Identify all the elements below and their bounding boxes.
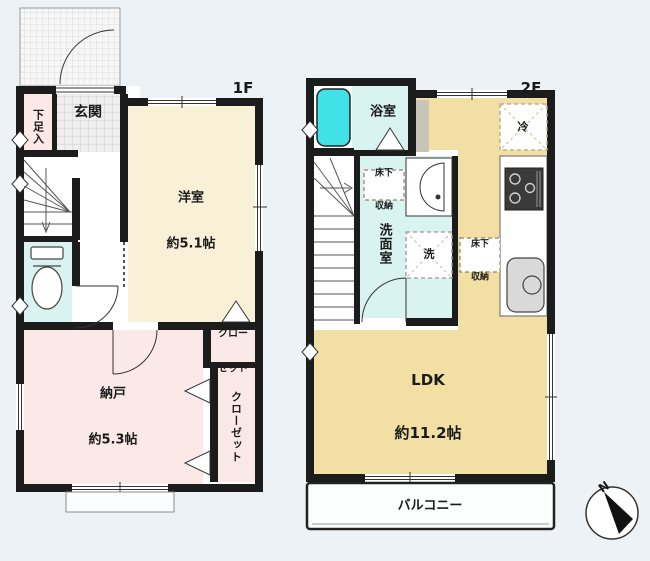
ldk-label: LDK 約11.2帖: [394, 337, 461, 461]
room-name: 納戸: [88, 386, 137, 401]
balcony-label: バルコニー: [398, 498, 463, 513]
room-name: 洋室: [166, 190, 215, 205]
underfloor-storage-washroom-label: 床下 収納: [375, 146, 393, 225]
floor2-label: 2F: [521, 80, 542, 98]
storage-room-door-gap: [113, 322, 158, 330]
washbasin-icon: [406, 158, 452, 216]
bathroom-label: 浴室: [370, 104, 396, 119]
entrance-porch: [20, 8, 120, 86]
window-bottom: [66, 482, 174, 512]
entrance-hall-floor: [57, 94, 122, 152]
floor2-plan: [302, 78, 557, 529]
window-storage-left: [16, 384, 24, 430]
compass-icon: [586, 487, 638, 539]
room-name: LDK: [394, 372, 461, 390]
bathtub-icon: [317, 89, 350, 146]
floor1-label: 1F: [233, 80, 254, 98]
refrigerator-label: 冷: [518, 122, 529, 135]
storage-line2: 収納: [375, 202, 393, 213]
closet-upper-label: クロー ゼット: [218, 305, 248, 388]
underfloor-storage-ldk-label: 床下 収納: [471, 217, 489, 296]
window-right: [253, 165, 267, 251]
entrance-label: 玄関: [74, 105, 102, 122]
washroom-label: 洗面室: [378, 223, 391, 265]
counter-end-panel: [416, 100, 429, 152]
closet-side-label: クローゼット: [231, 391, 242, 463]
room-size: 約5.1帖: [166, 236, 215, 251]
room-size: 約5.3帖: [88, 432, 137, 447]
floorplan-canvas: 1F 玄関 下足入 洋室 約5.1帖 クロー ゼット 納戸 約5.3帖 クローゼ…: [0, 0, 650, 561]
washer-label: 洗: [424, 249, 435, 262]
western-room-label: 洋室 約5.1帖: [166, 159, 215, 266]
storage-line1: 床下: [375, 168, 393, 179]
closet-line2: ゼット: [218, 364, 248, 376]
storage-room-label: 納戸 約5.3帖: [88, 355, 137, 462]
storage-line2: 収納: [471, 273, 489, 284]
room-size: 約11.2帖: [394, 426, 461, 444]
stove-icon: [505, 168, 543, 210]
sink-icon: [507, 258, 544, 312]
floorplan-drawing: [0, 0, 650, 561]
toilet-icon: [31, 247, 63, 309]
storage-line1: 床下: [471, 239, 489, 250]
closet-line1: クロー: [218, 328, 248, 340]
shoe-box-label: 下足入: [33, 109, 44, 145]
